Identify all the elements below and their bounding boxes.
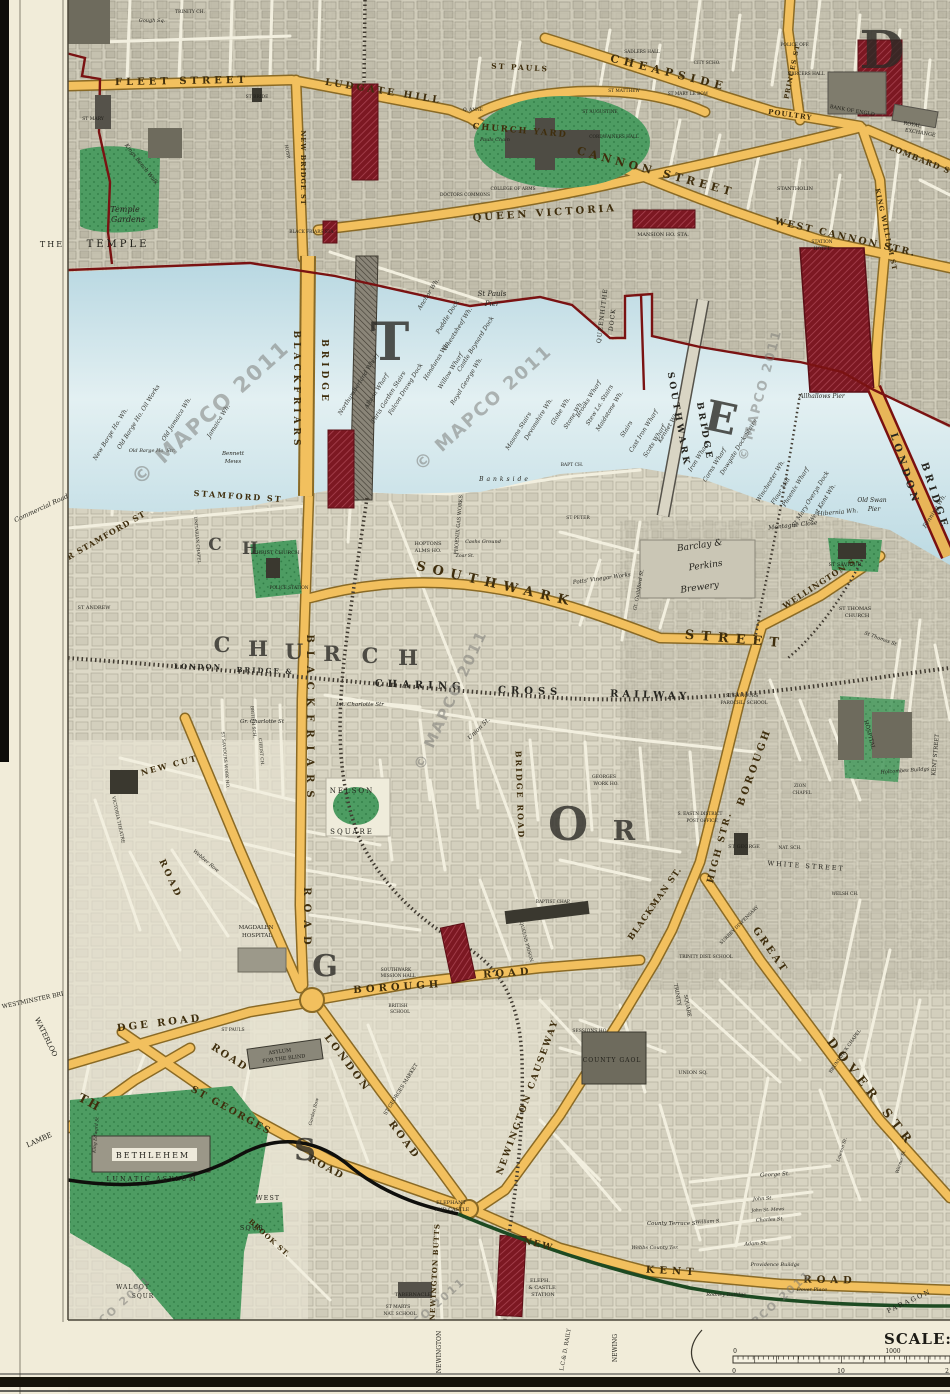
map-label: Gough Sq. [139,18,166,24]
district-letter: H [398,645,418,670]
map-label: ROAD [301,887,312,952]
map-label: POLICE OFF. [781,43,810,48]
margin-label: NEWINGTON [436,1331,443,1373]
map-label: SADLERS HALL [624,50,660,55]
map-label: MISSION HALL [381,974,416,979]
map-label: Providence Buildgs [750,1262,800,1268]
map-label: BAPTIST CHAP. [536,900,570,905]
map-label: Pier [867,506,882,513]
map-label: Cashs Ground [465,539,501,545]
map-label: Gardens [111,215,145,224]
map-label: BAPT CH. [561,462,584,468]
hospital-building-a [838,700,864,760]
corner-buildings [68,0,110,44]
map-label: ZION [794,784,806,789]
map-label: ST THOMAS [839,606,872,612]
map-label: ST MARY [82,116,105,122]
map-canvas: Anchor Wh.Puddle DockWheatsheaf Wh.Castl… [0,0,950,1394]
map-label: TRINITY DIST. SCHOOL [679,955,732,960]
map-label: STANTHOLIN [777,186,814,192]
map-label: TEMPLE [87,239,150,250]
map-label: SESSIONS HO. [572,1028,608,1034]
map-label: ST MARYS [386,1304,411,1310]
margin-label: THE [40,240,64,249]
map-label: ELEPH. [530,1278,550,1284]
scale-num-bottom-right: 2 [945,1368,949,1375]
map-label: BLACKFRIARS [291,331,301,450]
map-label: Temple [110,205,140,214]
map-label: BLACK FRIARS STA. [289,230,335,235]
st-mary-church [95,95,111,129]
map-label: Adam St. [743,1240,768,1247]
district-letter: O [548,797,588,851]
elephant-castle-station [496,1235,526,1316]
map-label: HOTEL [814,246,831,252]
map-label: MERCERS HALL [787,72,824,77]
ludgate-viaduct-station [352,84,378,180]
map-label: & CASTLE [528,1285,556,1291]
district-letter: D [859,20,904,81]
map-label: GEORGES [592,774,616,780]
map-label: COLLEGE OF ARMS [490,187,535,192]
blackfriars-bridge [306,256,308,496]
magdalen-hospital-building [238,948,286,972]
st-georges-circus [300,988,324,1012]
map-label: Old Swan [857,497,886,504]
map-label: SCHOOL [390,1010,410,1015]
scale-num-top-left: 0 [733,1348,737,1355]
map-label: TRINITY CH. [175,9,206,15]
map-label: BRITISH [388,1004,408,1009]
map-label: Zoar St. [455,553,475,559]
map-label: COUNTY GAOL [583,1057,642,1064]
bottom-border-band [0,1377,950,1387]
map-label: Bankside [478,476,531,483]
scale-num-bottom-left: 0 [732,1368,736,1375]
map-label: HOSPITAL [242,933,272,939]
map-label: BRIDGE [319,339,329,405]
map-label: Rodney Buildgs [705,1292,746,1298]
district-letter: C [214,632,231,657]
left-margin [0,0,68,1394]
left-edge-black-strip [0,0,9,762]
scale-num-top-right: 1000 [885,1348,900,1355]
victoria-theatre [110,770,138,794]
map-label: Bennett [221,451,245,457]
scale-label: SCALE: 6 [884,1330,950,1348]
district-letter: U [285,639,303,664]
map-label: TABERNACLE [395,1292,432,1298]
map-label: St Pauls [478,290,507,298]
map-label: Pauls Chain [479,137,510,143]
map-label: SOUTHWARK [381,968,412,973]
district-letter: R [323,641,341,666]
hospital-building-b [872,712,912,758]
map-label: BLACKFRIARS [304,634,315,805]
bottom-margin [0,1322,950,1376]
map-label: ELEPHANT [436,1200,466,1206]
district-letter: T [371,312,410,373]
map-label: STATION [531,1292,555,1298]
map-label: NEW BRIDGE ST [299,130,307,205]
map-label: NAT. SCHOOL [384,1311,417,1317]
map-label: ST PETER [566,515,590,521]
map-label: UNION SQ. [678,1070,708,1076]
map-label: CHRIST CHURCH [253,550,300,556]
district-letter: C [208,535,222,555]
map-label: CHURCH [845,613,870,619]
district-letter: G [312,949,338,984]
scale-num-bottom-mid: 10 [837,1368,845,1375]
map-label: WORK HO. [593,781,619,787]
margin-label: NEWING [612,1334,619,1362]
map-label: POST OFFICE [686,819,717,824]
map-label: ST ANDREW [78,605,112,611]
christ-church-building [266,558,280,578]
map-label: SQUR [240,1224,264,1232]
map-label: LUNATIC ASYLUM [107,1175,198,1183]
map-label: Gr. Charlotte St [240,719,285,725]
map-label: ST MARY LE BOW [668,92,709,97]
map-label: SQUARE [330,828,374,836]
map-label: ALMS HO. [414,548,442,554]
map-label: PAROCHL. SCHOOL [721,700,768,706]
map-sheet: Anchor Wh.Puddle DockWheatsheaf Wh.Castl… [0,0,950,1394]
district-letter: H [248,636,268,661]
map-label: FLEET STREET [115,75,249,88]
map-label: Allhallows Pier [798,393,846,400]
map-label: Q. ANNE [463,108,483,113]
mansion-house-station [633,210,695,228]
map-label: NELSON [330,787,375,795]
district-letter: S [294,1133,316,1168]
map-label: BETHLEHEM [116,1151,190,1160]
map-label: ST BRIDE [246,94,269,100]
map-label: Lit. Charlotte Str [335,702,384,708]
map-label: POLICE STATION [269,586,308,591]
map-label: County Terrace S. [647,1221,697,1227]
map-label: STATION [811,239,832,245]
map-label: ST PAULS [221,1027,244,1033]
map-label: AND CASTLE [434,1207,470,1213]
map-area: Anchor Wh.Puddle DockWheatsheaf Wh.Castl… [40,0,950,1364]
map-label: MAGDALEN [239,925,274,931]
map-label: Pier [484,300,500,308]
map-label: CHAPEL [792,791,811,796]
district-letter: R [613,816,636,847]
map-label: Mews [224,459,242,465]
map-label: CORDWAINERS HALL [589,135,639,140]
map-label: ST SAVIOURS [726,693,759,699]
map-label: LONDON [174,662,222,672]
district-letter: C [362,643,379,668]
map-label: John St. [752,1195,774,1202]
map-label: NAT. SCH. [779,846,802,851]
map-label: WELSH CH. [832,892,859,897]
map-label: Webbs County Ter. [631,1245,679,1251]
map-label: ST SAVIOUR [829,562,862,568]
map-label: WEST [256,1194,280,1202]
map-label: CITY SCHO. [694,61,721,66]
map-label: ST GEORGE [728,844,760,850]
map-label: ST AUGUSTINE [582,110,617,115]
district-letter: H [242,539,258,559]
map-label: MANSION HO. STA. [637,232,689,238]
blackfriars-station [328,430,354,508]
map-label: ST MATTHEW [608,89,640,94]
map-label: DOCTORS COMMONS [440,193,490,198]
map-label: CROSS [498,685,563,698]
map-label: S. EASTN DISTRICT [678,812,723,817]
temple-buildings [148,128,182,158]
map-label: HOPTONS [414,541,442,547]
